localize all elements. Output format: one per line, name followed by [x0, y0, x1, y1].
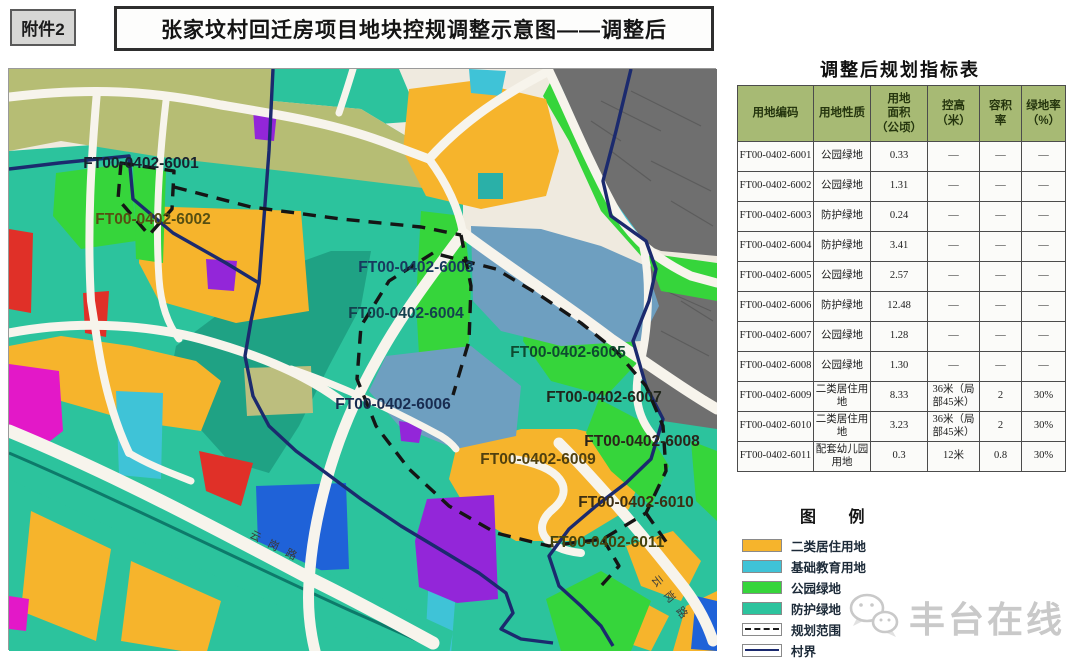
table-cell: — [1022, 262, 1066, 292]
table-cell: 2.57 [871, 262, 928, 292]
table-cell: — [980, 322, 1022, 352]
table-cell: 公园绿地 [814, 262, 871, 292]
table-cell: — [1022, 202, 1066, 232]
table-cell: 0.3 [871, 442, 928, 472]
table-cell: FT00-0402-6011 [738, 442, 814, 472]
table-cell: — [1022, 172, 1066, 202]
wechat-icon [845, 588, 903, 645]
table-cell: FT00-0402-6006 [738, 292, 814, 322]
table-column-header: 容积 率 [980, 86, 1022, 142]
table-row: FT00-0402-6010二类居住用地3.2336米（局部45米）230% [738, 412, 1066, 442]
table-column-header: 控高 （米） [928, 86, 980, 142]
table-row: FT00-0402-6003防护绿地0.24——— [738, 202, 1066, 232]
table-cell: 3.23 [871, 412, 928, 442]
parcel-teal-square [478, 173, 503, 199]
parcel-purple-4 [415, 495, 498, 603]
table-cell: 30% [1022, 412, 1066, 442]
page-title: 张家坟村回迁房项目地块控规调整示意图——调整后 [114, 6, 714, 51]
table-cell: 36米（局部45米） [928, 412, 980, 442]
table-cell: FT00-0402-6003 [738, 202, 814, 232]
table-cell: 2 [980, 382, 1022, 412]
table-cell: 30% [1022, 382, 1066, 412]
table-row: FT00-0402-6004防护绿地3.41——— [738, 232, 1066, 262]
table-cell: 公园绿地 [814, 322, 871, 352]
table-cell: 二类居住用地 [814, 382, 871, 412]
legend-swatch [742, 623, 782, 636]
table-cell: 公园绿地 [814, 352, 871, 382]
table-cell: 36米（局部45米） [928, 382, 980, 412]
watermark: 丰台在线 [845, 588, 1065, 645]
table-cell: 配套幼儿园用地 [814, 442, 871, 472]
legend-swatch [742, 560, 782, 573]
legend-title: 图 例 [800, 503, 962, 527]
table-cell: FT00-0402-6004 [738, 232, 814, 262]
table-cell: 1.28 [871, 322, 928, 352]
parcel-label: FT00-0402-6003 [358, 259, 474, 276]
parcel-label: FT00-0402-6005 [510, 344, 626, 361]
indicator-table: 用地编码用地性质用地 面积 （公顷）控高 （米）容积 率绿地率 （%） FT00… [737, 85, 1066, 472]
legend-item-label: 规划范围 [791, 620, 841, 639]
table-cell: 12.48 [871, 292, 928, 322]
table-title: 调整后规划指标表 [735, 56, 1065, 82]
table-row: FT00-0402-6009二类居住用地8.3336米（局部45米）230% [738, 382, 1066, 412]
table-row: FT00-0402-6001公园绿地0.33——— [738, 142, 1066, 172]
parcel-label: FT00-0402-6006 [335, 396, 451, 413]
table-cell: — [928, 172, 980, 202]
table-cell: — [980, 262, 1022, 292]
parcel-magenta-2 [9, 596, 29, 631]
table-row: FT00-0402-6007公园绿地1.28——— [738, 322, 1066, 352]
table-row: FT00-0402-6011配套幼儿园用地0.312米0.830% [738, 442, 1066, 472]
table-cell: — [980, 202, 1022, 232]
table-cell: 2 [980, 412, 1022, 442]
table-cell: 0.24 [871, 202, 928, 232]
table-column-header: 用地 面积 （公顷） [871, 86, 928, 142]
legend-swatch [742, 539, 782, 552]
planning-map-canvas: FT00-0402-6001FT00-0402-6002FT00-0402-60… [9, 69, 717, 651]
parcel-cyan-3 [469, 69, 506, 96]
attachment-badge: 附件2 [10, 9, 76, 46]
table-cell: FT00-0402-6005 [738, 262, 814, 292]
table-cell: FT00-0402-6009 [738, 382, 814, 412]
table-cell: — [1022, 142, 1066, 172]
table-cell: 防护绿地 [814, 292, 871, 322]
table-row: FT00-0402-6005公园绿地2.57——— [738, 262, 1066, 292]
table-cell: 1.31 [871, 172, 928, 202]
table-cell: 0.8 [980, 442, 1022, 472]
table-cell: — [1022, 292, 1066, 322]
watermark-text: 丰台在线 [909, 591, 1065, 643]
table-cell: — [928, 142, 980, 172]
table-cell: — [928, 262, 980, 292]
parcel-red-1 [9, 229, 33, 313]
parcel-label: FT00-0402-6001 [83, 155, 199, 172]
table-cell: 8.33 [871, 382, 928, 412]
table-cell: 防护绿地 [814, 202, 871, 232]
table-cell: FT00-0402-6002 [738, 172, 814, 202]
table-cell: — [928, 352, 980, 382]
table-cell: — [1022, 232, 1066, 262]
table-cell: — [980, 172, 1022, 202]
table-cell: — [1022, 322, 1066, 352]
table-cell: 0.33 [871, 142, 928, 172]
table-cell: — [980, 352, 1022, 382]
legend-item-label: 防护绿地 [791, 599, 841, 618]
table-row: FT00-0402-6006防护绿地12.48——— [738, 292, 1066, 322]
table-column-header: 用地性质 [814, 86, 871, 142]
table-row: FT00-0402-6002公园绿地1.31——— [738, 172, 1066, 202]
legend-swatch [742, 644, 782, 657]
legend-item-label: 公园绿地 [791, 578, 841, 597]
table-cell: FT00-0402-6007 [738, 322, 814, 352]
table-cell: 30% [1022, 442, 1066, 472]
parcel-label: FT00-0402-6002 [95, 211, 210, 228]
table-row: FT00-0402-6008公园绿地1.30——— [738, 352, 1066, 382]
table-header-row: 用地编码用地性质用地 面积 （公顷）控高 （米）容积 率绿地率 （%） [738, 86, 1066, 142]
table-cell: 公园绿地 [814, 172, 871, 202]
table-cell: 12米 [928, 442, 980, 472]
table-cell: — [980, 292, 1022, 322]
legend-item-label: 村界 [791, 641, 816, 660]
parcel-label: FT00-0402-6009 [480, 451, 596, 468]
table-cell: — [928, 202, 980, 232]
legend-item-label: 基础教育用地 [791, 557, 866, 576]
table-cell: FT00-0402-6001 [738, 142, 814, 172]
legend-item: 二类居住用地 [742, 535, 962, 555]
table-column-header: 用地编码 [738, 86, 814, 142]
parcel-label: FT00-0402-6008 [584, 433, 700, 450]
table-cell: — [980, 142, 1022, 172]
table-cell: FT00-0402-6008 [738, 352, 814, 382]
table-cell: 防护绿地 [814, 232, 871, 262]
parcel-label: FT00-0402-6007 [546, 389, 661, 406]
table-cell: — [928, 232, 980, 262]
table-cell: 公园绿地 [814, 142, 871, 172]
parcel-label: FT00-0402-6011 [550, 534, 665, 551]
legend-swatch [742, 602, 782, 615]
parcel-label: FT00-0402-6010 [578, 494, 693, 511]
table-cell: 1.30 [871, 352, 928, 382]
table-column-header: 绿地率 （%） [1022, 86, 1066, 142]
table-cell: FT00-0402-6010 [738, 412, 814, 442]
table-cell: 3.41 [871, 232, 928, 262]
table-cell: — [980, 232, 1022, 262]
planning-map: FT00-0402-6001FT00-0402-6002FT00-0402-60… [8, 68, 716, 650]
legend-item: 基础教育用地 [742, 556, 962, 576]
table-cell: — [928, 322, 980, 352]
table-cell: — [928, 292, 980, 322]
table-cell: — [1022, 352, 1066, 382]
table-cell: 二类居住用地 [814, 412, 871, 442]
legend-item-label: 二类居住用地 [791, 536, 866, 555]
parcel-label: FT00-0402-6004 [348, 305, 464, 322]
legend-swatch [742, 581, 782, 594]
parcel-purple-2 [206, 259, 237, 291]
